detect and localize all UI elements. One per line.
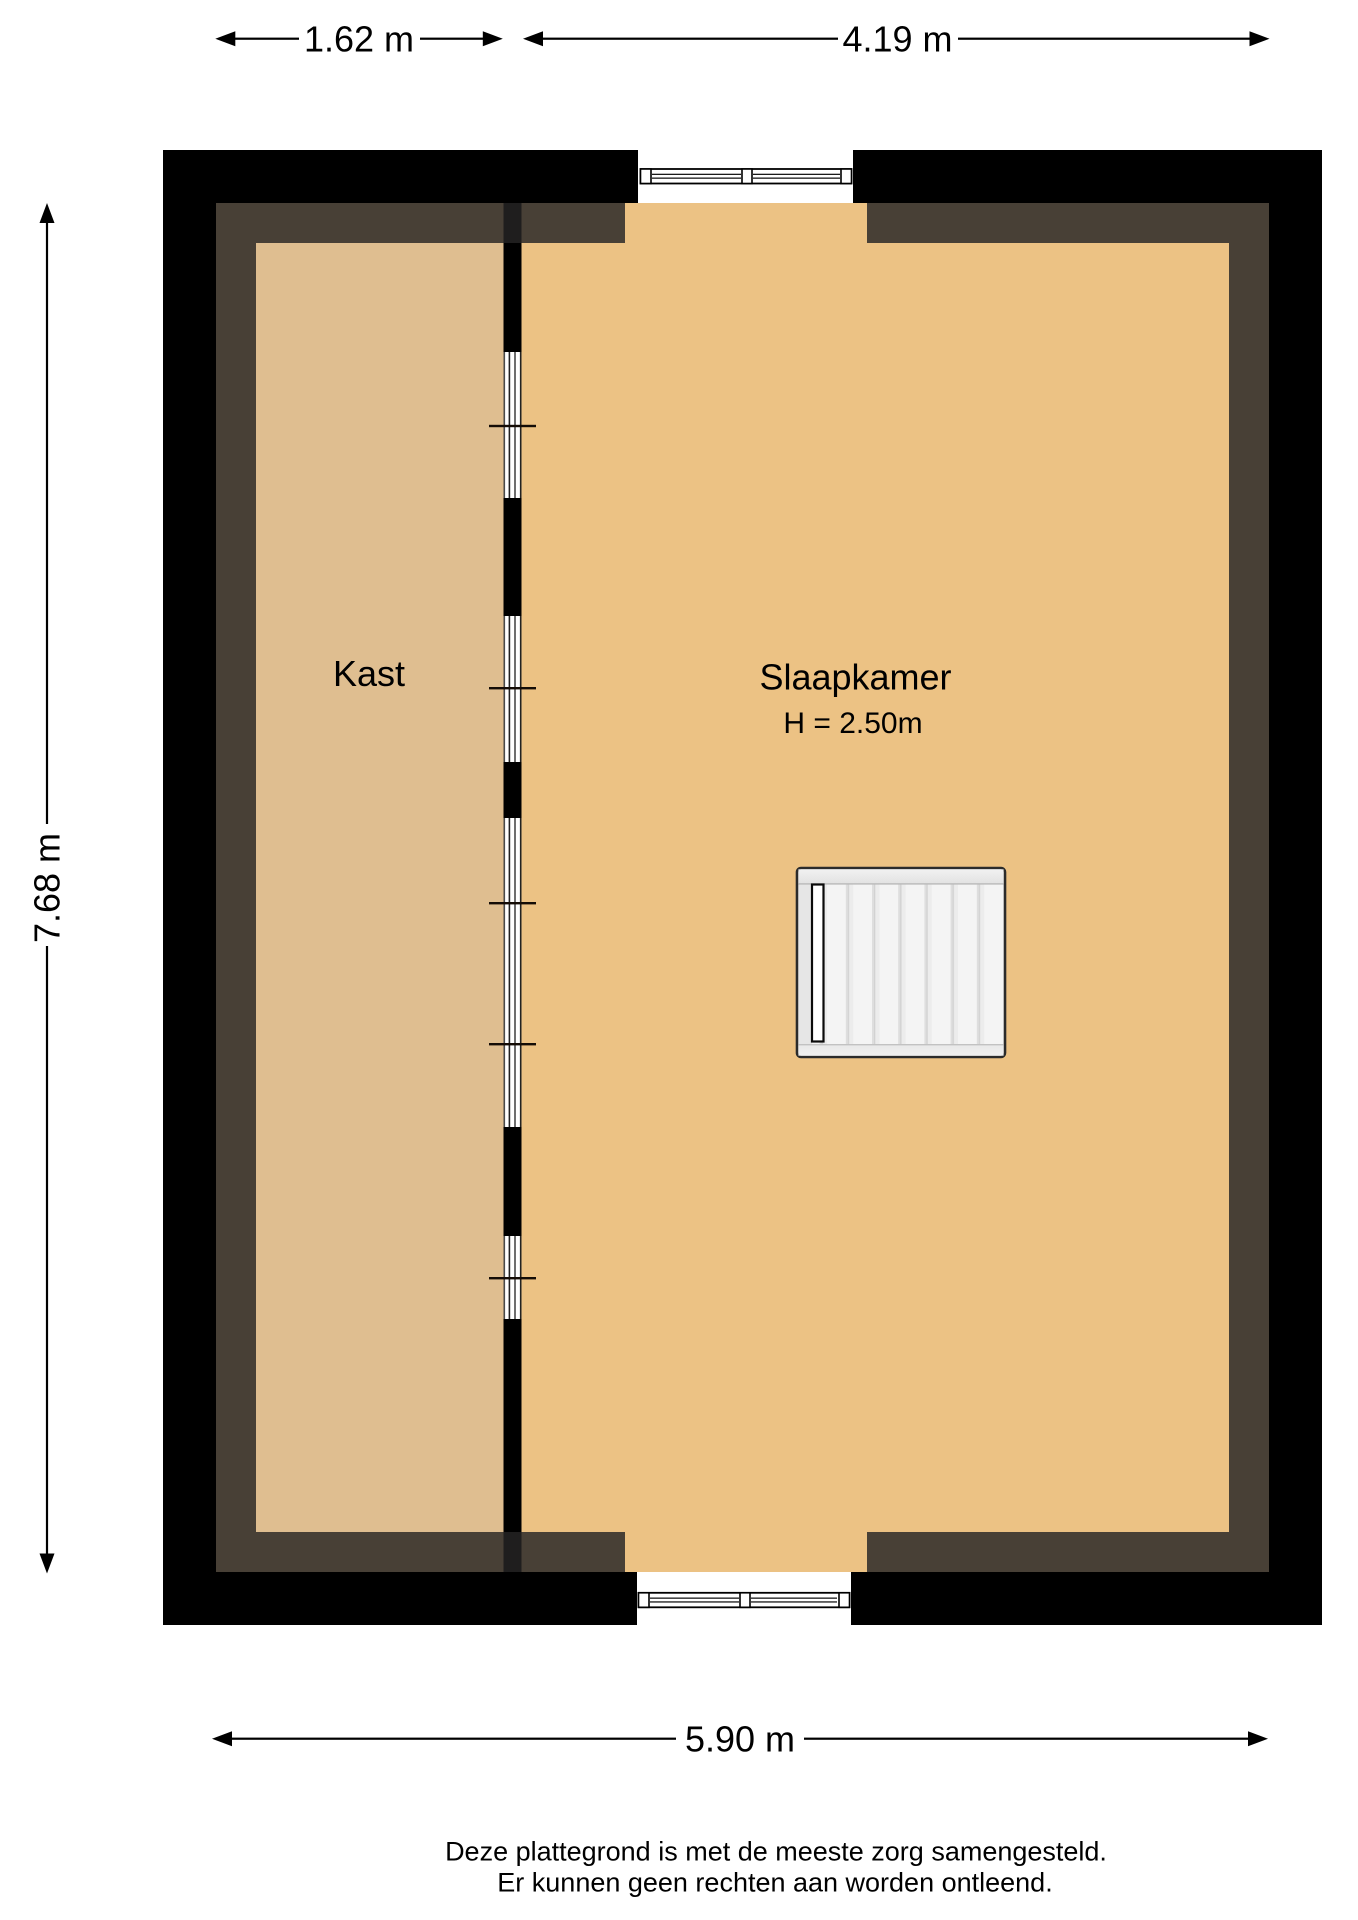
svg-text:1.62 m: 1.62 m — [304, 19, 414, 60]
svg-text:5.90 m: 5.90 m — [685, 1719, 795, 1760]
svg-text:H = 2.50m: H = 2.50m — [783, 707, 922, 740]
svg-text:4.19 m: 4.19 m — [842, 19, 952, 60]
svg-text:Er kunnen geen rechten aan wor: Er kunnen geen rechten aan worden ontlee… — [497, 1868, 1052, 1898]
svg-text:7.68 m: 7.68 m — [27, 833, 68, 943]
svg-text:Deze plattegrond is met de mee: Deze plattegrond is met de meeste zorg s… — [445, 1837, 1107, 1867]
svg-text:Kast: Kast — [333, 653, 405, 694]
svg-text:Slaapkamer: Slaapkamer — [759, 657, 951, 698]
